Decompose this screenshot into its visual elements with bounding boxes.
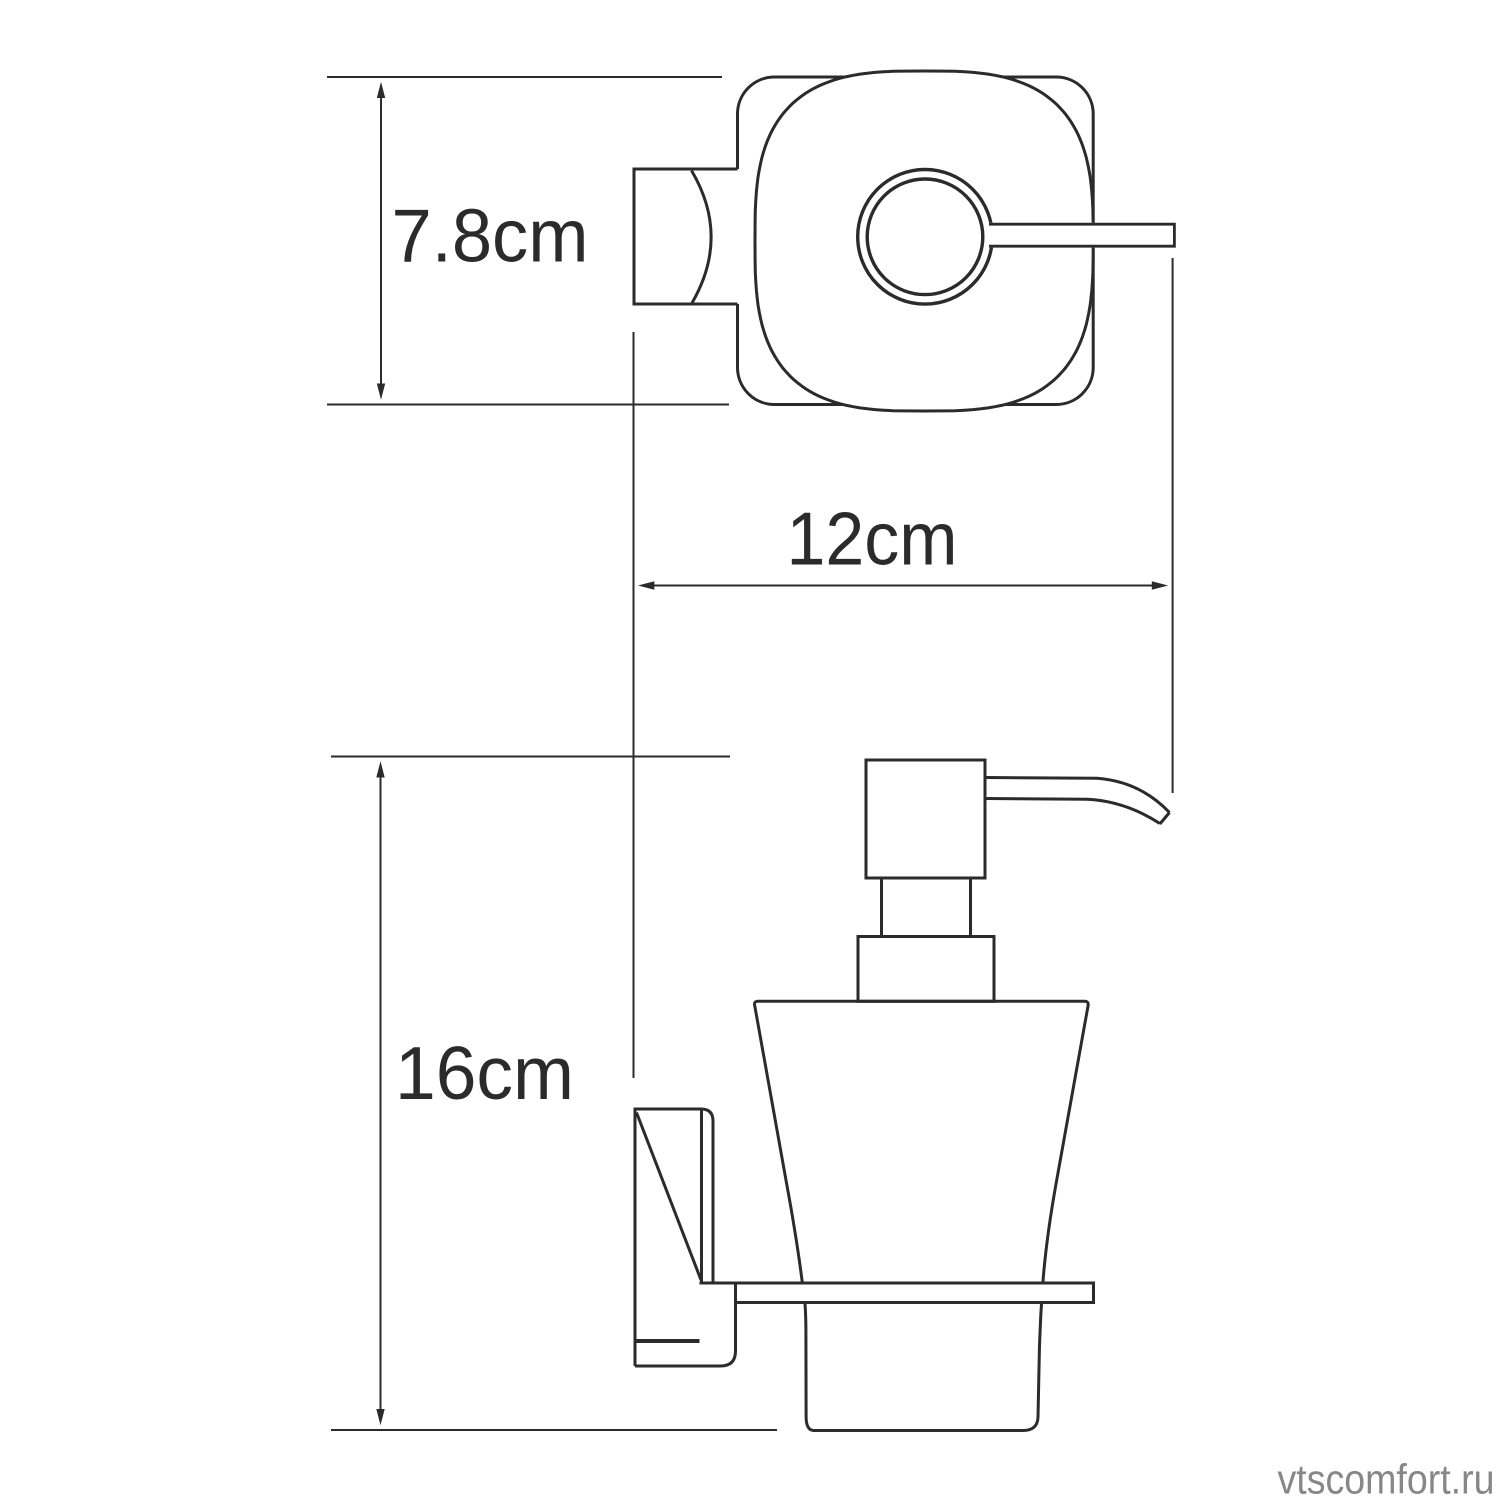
svg-text:12cm: 12cm (787, 497, 958, 581)
svg-text:16cm: 16cm (395, 1031, 574, 1115)
svg-text:vtscomfort.ru: vtscomfort.ru (1278, 1456, 1495, 1503)
svg-text:7.8cm: 7.8cm (392, 194, 589, 278)
